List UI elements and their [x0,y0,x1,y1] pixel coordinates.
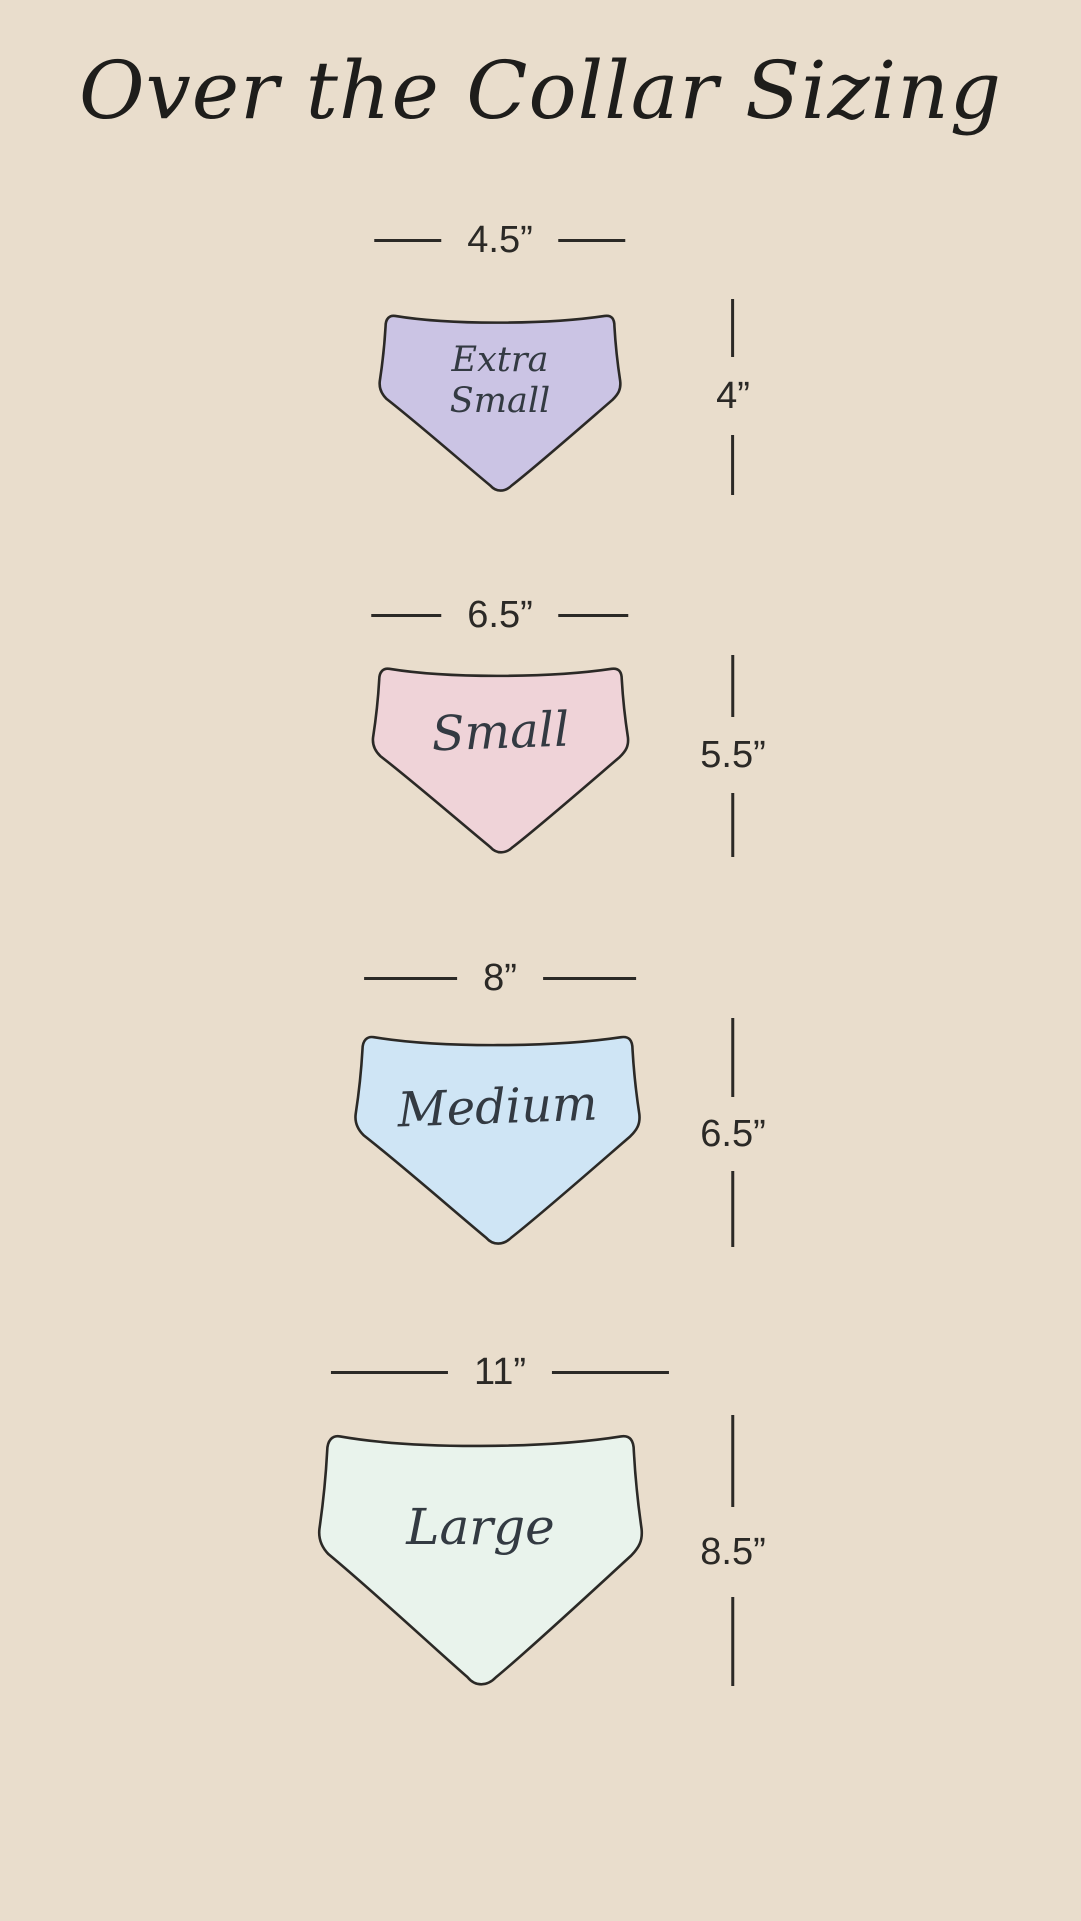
dimension-dash [552,1371,669,1374]
height-dimension-extra-small: 4” [716,299,750,495]
bandana-name: Large [313,1498,648,1557]
dimension-dash [559,239,626,242]
bandana-name: Medium [349,1074,646,1141]
height-dimension-medium: 6.5” [700,1018,765,1247]
dimension-segment [731,435,734,495]
bandana-name-line1: Extra [375,340,625,381]
dimension-dash [559,614,629,617]
dimension-segment [731,793,734,857]
dimension-dash [364,977,457,980]
dimension-segment [731,1018,734,1097]
bandana-name-line2: Small [375,381,625,422]
dimension-segment [731,299,734,357]
bandana-medium: Medium [350,1016,645,1250]
width-dimension-extra-small: 4.5” [374,219,625,261]
dimension-segment [731,1415,734,1507]
page-title: Over the Collar Sizing [0,44,1081,137]
width-dimension-large: 11” [331,1351,669,1393]
height-label-medium: 6.5” [700,1113,765,1155]
dimension-dash [331,1371,448,1374]
width-label-small: 6.5” [467,594,532,636]
bandana-small: Small [368,650,633,858]
dimension-dash [543,977,636,980]
bandana-name: Small [367,699,634,765]
width-dimension-medium: 8” [364,957,636,999]
dimension-dash [371,614,441,617]
dimension-segment [731,655,734,717]
bandana-shape [355,1037,639,1244]
height-dimension-small: 5.5” [700,655,765,857]
width-label-medium: 8” [483,957,517,999]
dimension-segment [731,1597,734,1686]
sizing-chart: Over the Collar Sizing 4.5” Extra Small … [0,0,1081,1921]
width-label-large: 11” [474,1351,526,1393]
width-dimension-small: 6.5” [371,594,628,636]
bandana-shape [319,1436,642,1684]
bandana-extra-small: Extra Small [375,298,625,496]
width-label-extra-small: 4.5” [467,219,532,261]
dimension-segment [731,1171,734,1247]
height-label-small: 5.5” [700,734,765,776]
bandana-name: Extra Small [375,340,625,423]
dimension-dash [374,239,441,242]
bandana-large: Large [313,1411,648,1692]
height-dimension-large: 8.5” [700,1415,765,1686]
height-label-extra-small: 4” [716,375,750,417]
height-label-large: 8.5” [700,1531,765,1573]
